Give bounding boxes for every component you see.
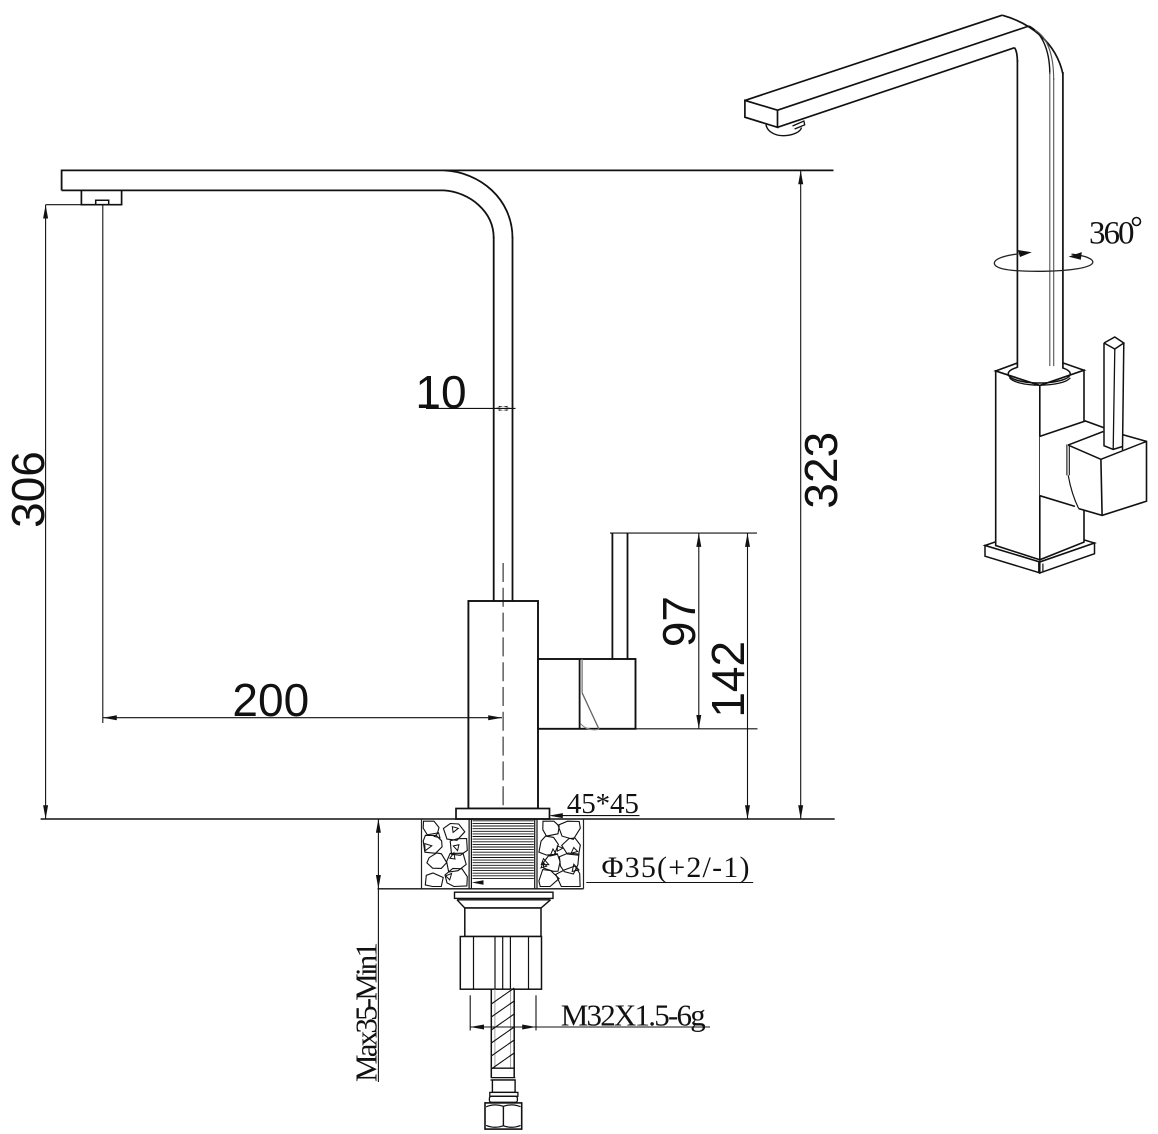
svg-text:M32X1.5-6g: M32X1.5-6g [561,997,706,1032]
svg-text:97: 97 [653,596,705,647]
svg-text:306: 306 [2,451,54,528]
svg-text:Φ35(+2/-1): Φ35(+2/-1) [602,851,751,884]
svg-text:323: 323 [795,432,847,509]
svg-text:10: 10 [415,366,466,418]
svg-text:200: 200 [232,674,309,726]
svg-text:360: 360 [1089,216,1134,252]
svg-text:45*45: 45*45 [567,788,639,820]
svg-text:Max35-Min1: Max35-Min1 [349,942,384,1082]
svg-text:142: 142 [702,641,754,718]
